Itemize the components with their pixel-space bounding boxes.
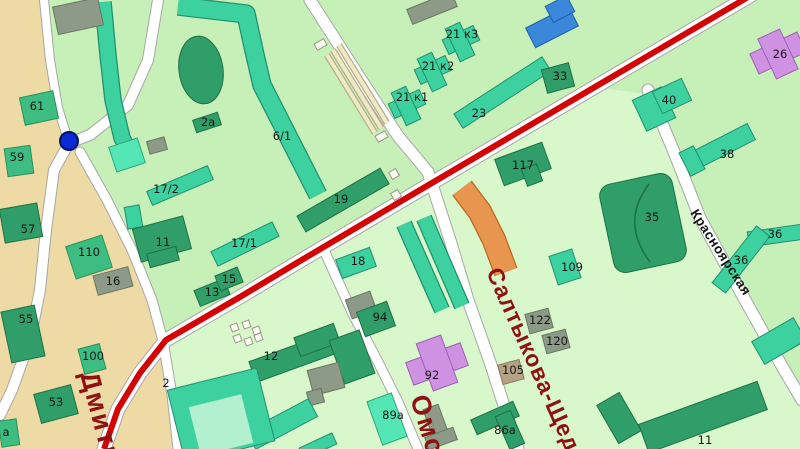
building-number-label: 12	[264, 349, 279, 363]
building-number-label: 15	[222, 272, 237, 286]
building-number-label: 11	[698, 433, 713, 447]
building-number-label: 110	[78, 245, 100, 259]
building-number-label: 18	[351, 254, 366, 268]
building-number-label: 26	[773, 47, 788, 61]
building-number-label: 59	[10, 150, 25, 164]
building-number-label: 17/2	[153, 182, 179, 196]
building-number-label: 89а	[382, 408, 404, 422]
building-number-label: 33	[553, 69, 568, 83]
building-number-label: 23	[472, 106, 487, 120]
building-number-label: 86а	[494, 423, 516, 437]
building-number-label: 61	[30, 99, 45, 113]
building-number-label: 57	[21, 222, 36, 236]
building-number-label: а	[2, 425, 9, 439]
building-number-label: 11	[156, 235, 171, 249]
building-number-label: 36	[768, 227, 783, 241]
building-number-label: 40	[662, 93, 677, 107]
building-number-label: 17/1	[231, 236, 257, 250]
building-number-label: 105	[502, 363, 524, 377]
building-number-label: 94	[373, 310, 388, 324]
map-canvas[interactable]: 615957551101610053а2а6/117/217/111191315…	[0, 0, 800, 449]
building-number-label: 21 к1	[396, 90, 429, 104]
building-number-label: 19	[334, 192, 349, 206]
building-number-label: 120	[546, 334, 568, 348]
building[interactable]	[124, 205, 143, 229]
building-number-label: 38	[720, 147, 735, 161]
building-number-label: 53	[49, 395, 64, 409]
building-number-label: 100	[82, 349, 104, 363]
building-number-label: 35	[645, 210, 660, 224]
building-number-label: 92	[425, 368, 440, 382]
building-number-label: 55	[19, 312, 34, 326]
map-svg[interactable]: 615957551101610053а2а6/117/217/111191315…	[0, 0, 800, 449]
building-number-label: 6/1	[273, 129, 292, 143]
building-number-label: 16	[106, 274, 121, 288]
building-number-label: 21 к2	[422, 59, 455, 73]
location-marker[interactable]	[60, 132, 78, 150]
building-number-label: 13	[205, 285, 220, 299]
building-number-label: 2	[162, 376, 169, 390]
building-number-label: 2а	[201, 115, 215, 129]
building-number-label: 117	[512, 158, 534, 172]
building-number-label: 109	[561, 260, 583, 274]
building-number-label: 21 к3	[446, 27, 479, 41]
